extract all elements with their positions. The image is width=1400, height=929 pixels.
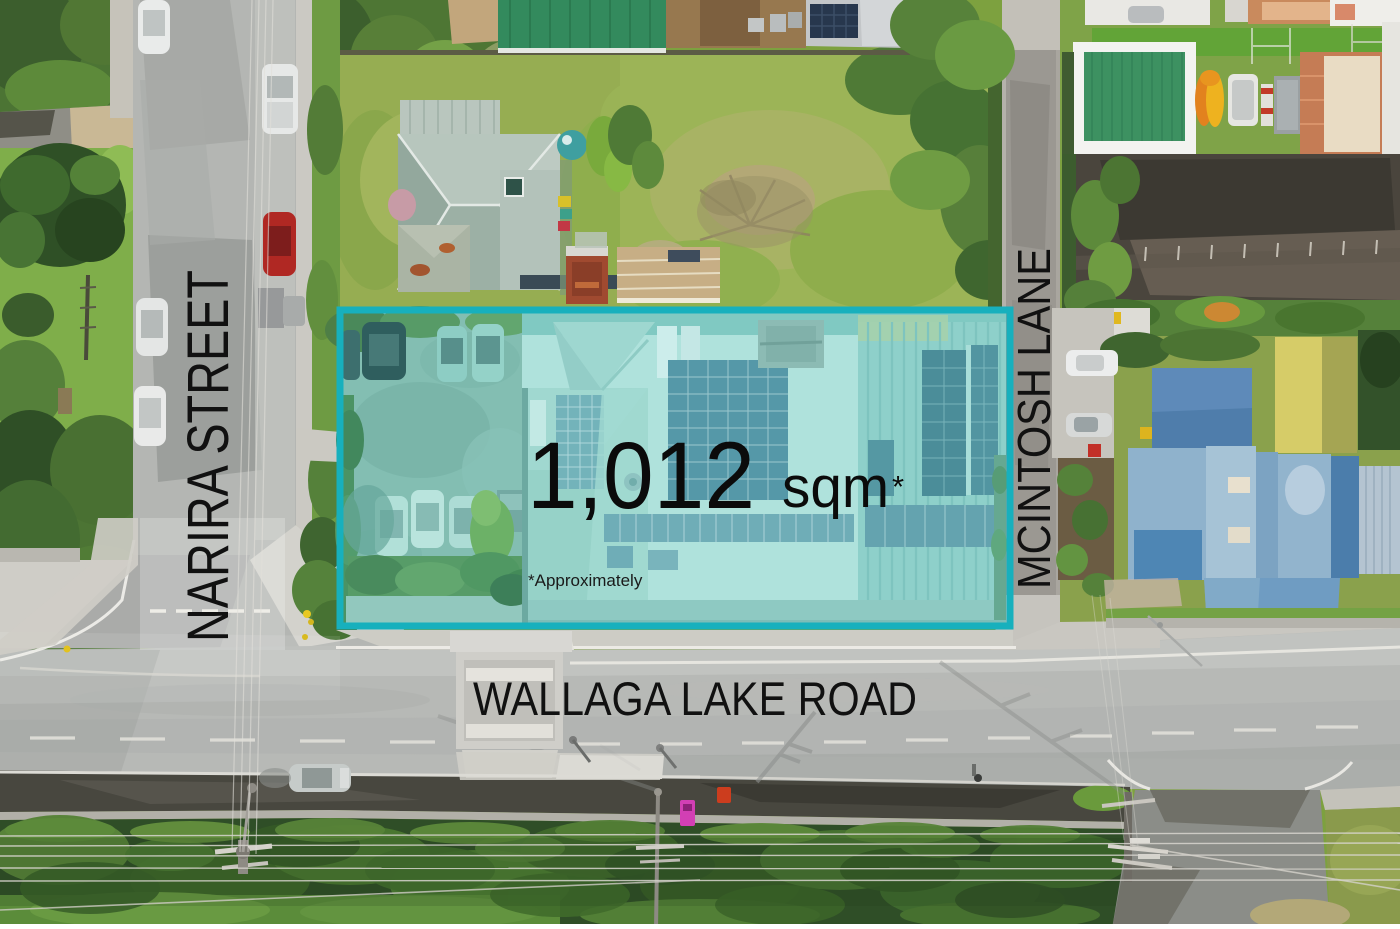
svg-text:*Approximately: *Approximately: [528, 571, 643, 590]
svg-text:sqm: sqm: [782, 455, 889, 520]
svg-text:1,012: 1,012: [527, 423, 755, 529]
svg-text:MCINTOSH LANE: MCINTOSH LANE: [1008, 248, 1060, 589]
svg-text:*: *: [892, 469, 904, 504]
svg-text:WALLAGA LAKE ROAD: WALLAGA LAKE ROAD: [473, 672, 917, 725]
svg-text:NARIRA STREET: NARIRA STREET: [176, 270, 241, 642]
